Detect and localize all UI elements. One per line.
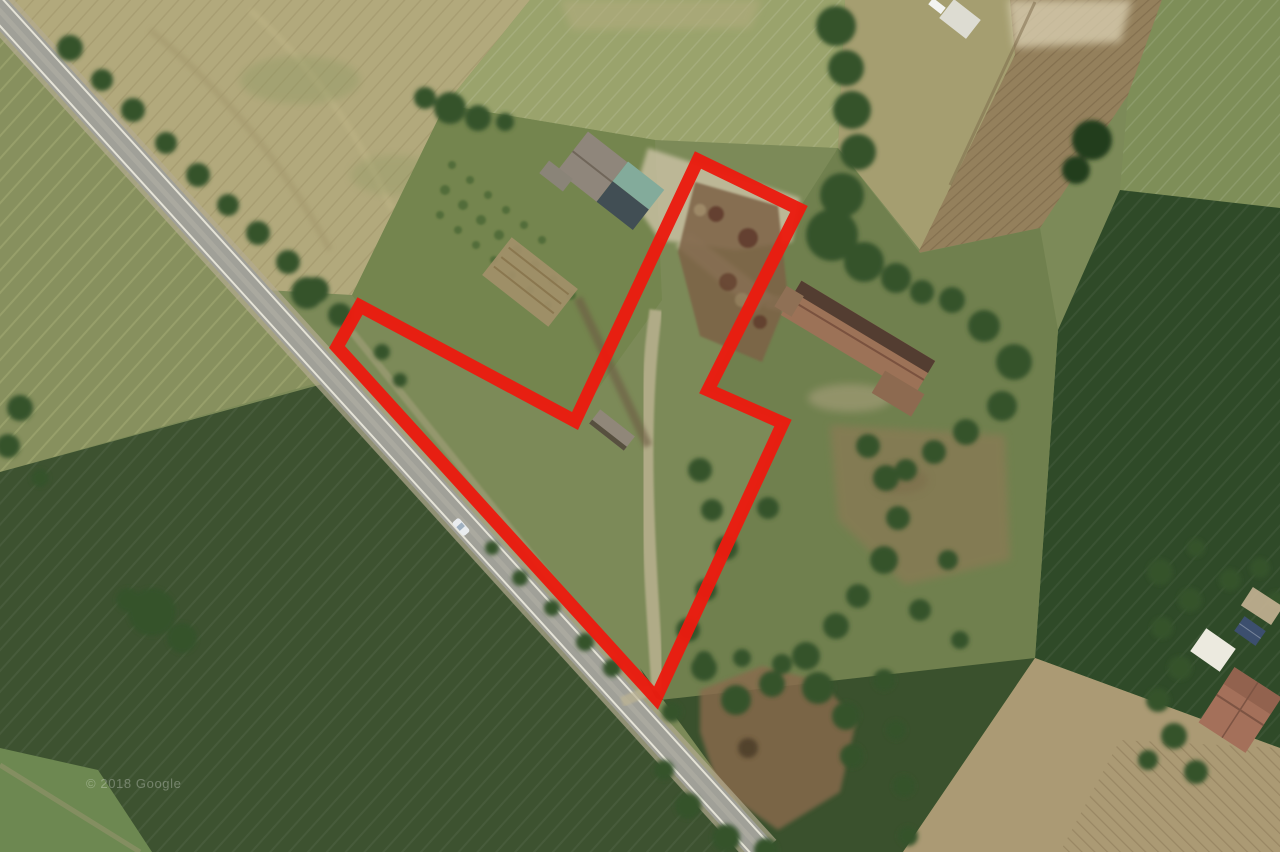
satellite-image: © 2018 Google [0, 0, 1280, 852]
google-watermark: © 2018 Google [86, 776, 181, 791]
aerial-photo-canvas: © 2018 Google [0, 0, 1280, 852]
